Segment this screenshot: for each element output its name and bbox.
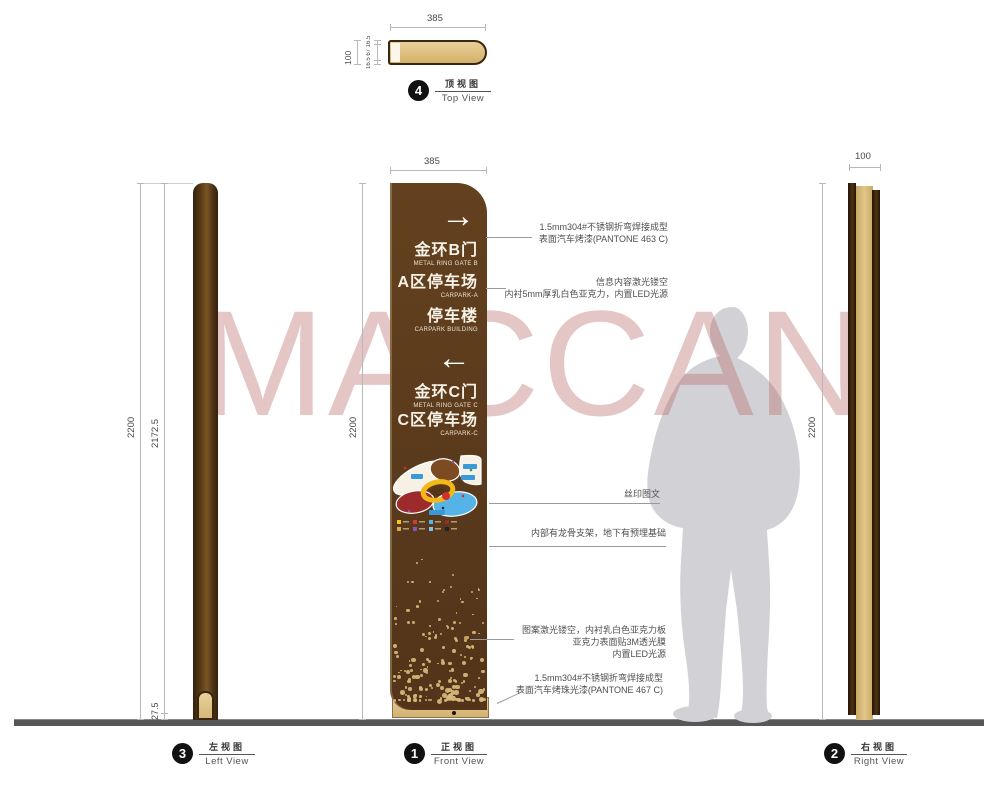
annotation-inner-frame: 内部有龙骨支架，地下有预埋基础 — [426, 528, 666, 540]
dim-label-right-100: 100 — [855, 151, 871, 162]
sign-entry: 金环C门 METAL RING GATE C — [413, 385, 478, 409]
view-label-top: 4 顶视图 Top View — [408, 77, 491, 104]
annotation-line: 内衬5mm厚乳白色亚克力，内置LED光源 — [418, 289, 668, 301]
dim-line-left-2200 — [140, 183, 141, 720]
dim-label-right-2200: 2200 — [807, 398, 818, 438]
right-view-steel-edge — [848, 183, 856, 715]
dim-label-top-100: 100 — [343, 41, 353, 65]
view-label-left: 3 左视图 Left View — [172, 740, 255, 767]
annotation-line: 丝印图文 — [420, 489, 660, 501]
label-divider — [435, 91, 491, 92]
annotation-line: 表面汽车烤珠光漆(PANTONE 467 C) — [423, 685, 663, 697]
view-label-right: 2 右视图 Right View — [824, 740, 907, 767]
view-number-badge: 2 — [824, 743, 845, 764]
dim-line-right-100 — [849, 167, 881, 168]
destination-zh: 金环C门 — [413, 385, 478, 402]
annotation-line: 亚克力表面贴3M透光膜 — [426, 637, 666, 649]
view-number-badge: 1 — [404, 743, 425, 764]
view-label-en: Left View — [205, 756, 248, 767]
view-number-badge: 3 — [172, 743, 193, 764]
dim-label-left-27: 27.5 — [150, 694, 160, 720]
sign-entry: 停车楼 CARPARK BUILDING — [415, 309, 478, 333]
dim-label-top-sections: 16.5 67 16.5 — [366, 36, 372, 69]
label-divider — [851, 754, 907, 755]
annotation-line: 图案激光镂空，内衬乳白色亚克力板 — [426, 625, 666, 637]
left-view-base-foot — [197, 691, 214, 720]
dim-line-front-385 — [390, 170, 487, 171]
annotation-base-paint: 1.5mm304#不锈钢折弯焊接成型 表面汽车烤珠光漆(PANTONE 467 … — [423, 673, 663, 697]
destination-zh: 停车楼 — [415, 309, 478, 326]
dim-line-top-385 — [390, 27, 486, 28]
dim-line-right-2200 — [822, 183, 823, 720]
annotation-line: 内置LED光源 — [426, 649, 666, 661]
right-view-steel-edge — [872, 190, 880, 715]
annotation-line: 1.5mm304#不锈钢折弯焊接成型 — [423, 673, 663, 685]
leader-line — [489, 546, 666, 547]
annotation-laser-cut-text: 信息内容激光镂空 内衬5mm厚乳白色亚克力，内置LED光源 — [418, 277, 668, 301]
base-anchor-dot — [452, 711, 456, 715]
destination-en: METAL RING GATE B — [414, 261, 478, 267]
destination-en: CARPARK-C — [397, 431, 478, 437]
view-label-front: 1 正视图 Front View — [404, 740, 487, 767]
sign-entry: 金环B门 METAL RING GATE B — [414, 243, 478, 267]
dim-tick — [374, 60, 381, 61]
view-label-en: Front View — [434, 756, 484, 767]
signage-design-drawing: MACCAN 385 100 16.5 67 16.5 4 顶视图 Top Vi… — [0, 0, 1000, 785]
view-label-zh: 顶视图 — [445, 77, 481, 90]
dim-label-top-385: 385 — [427, 13, 443, 24]
arrow-left-icon: ← — [437, 341, 471, 375]
top-view-acrylic-cap — [391, 43, 400, 62]
left-view-pole — [193, 183, 218, 720]
leader-line — [489, 503, 660, 504]
view-number-badge: 4 — [408, 80, 429, 101]
view-label-zh: 左视图 — [209, 740, 245, 753]
view-label-zh: 右视图 — [861, 740, 897, 753]
annotation-line: 信息内容激光镂空 — [418, 277, 668, 289]
ground-line — [14, 719, 984, 726]
sign-entry: C区停车场 CARPARK-C — [397, 413, 478, 437]
dim-line-top-100 — [357, 40, 358, 65]
dim-label-front-2200: 2200 — [348, 398, 359, 438]
label-divider — [199, 754, 255, 755]
destination-zh: C区停车场 — [397, 413, 478, 430]
dim-line-front-2200 — [362, 183, 363, 720]
dim-label-left-2172: 2172.5 — [150, 392, 161, 448]
annotation-silkscreen: 丝印图文 — [420, 489, 660, 501]
annotation-steel-paint: 1.5mm304#不锈钢折弯焊接成型 表面汽车烤漆(PANTONE 463 C) — [418, 222, 668, 246]
annotation-line: 表面汽车烤漆(PANTONE 463 C) — [418, 234, 668, 246]
view-label-zh: 正视图 — [441, 740, 477, 753]
destination-en: METAL RING GATE C — [413, 403, 478, 409]
dim-label-left-2200: 2200 — [126, 398, 137, 438]
annotation-line: 内部有龙骨支架，地下有预埋基础 — [426, 528, 666, 540]
top-view-section — [388, 40, 487, 65]
view-label-en: Right View — [854, 756, 904, 767]
annotation-line: 1.5mm304#不锈钢折弯焊接成型 — [418, 222, 668, 234]
dim-line-left-2172 — [164, 183, 165, 720]
annotation-pattern-laser: 图案激光镂空，内衬乳白色亚克力板 亚克力表面贴3M透光膜 内置LED光源 — [426, 625, 666, 661]
watermark: MACCAN — [200, 288, 868, 438]
label-divider — [431, 754, 487, 755]
dim-label-front-385: 385 — [424, 156, 440, 167]
dim-tick — [374, 44, 381, 45]
right-view-body — [856, 186, 873, 720]
dim-tick — [161, 713, 168, 714]
view-label-en: Top View — [442, 93, 484, 104]
destination-en: CARPARK BUILDING — [415, 327, 478, 333]
